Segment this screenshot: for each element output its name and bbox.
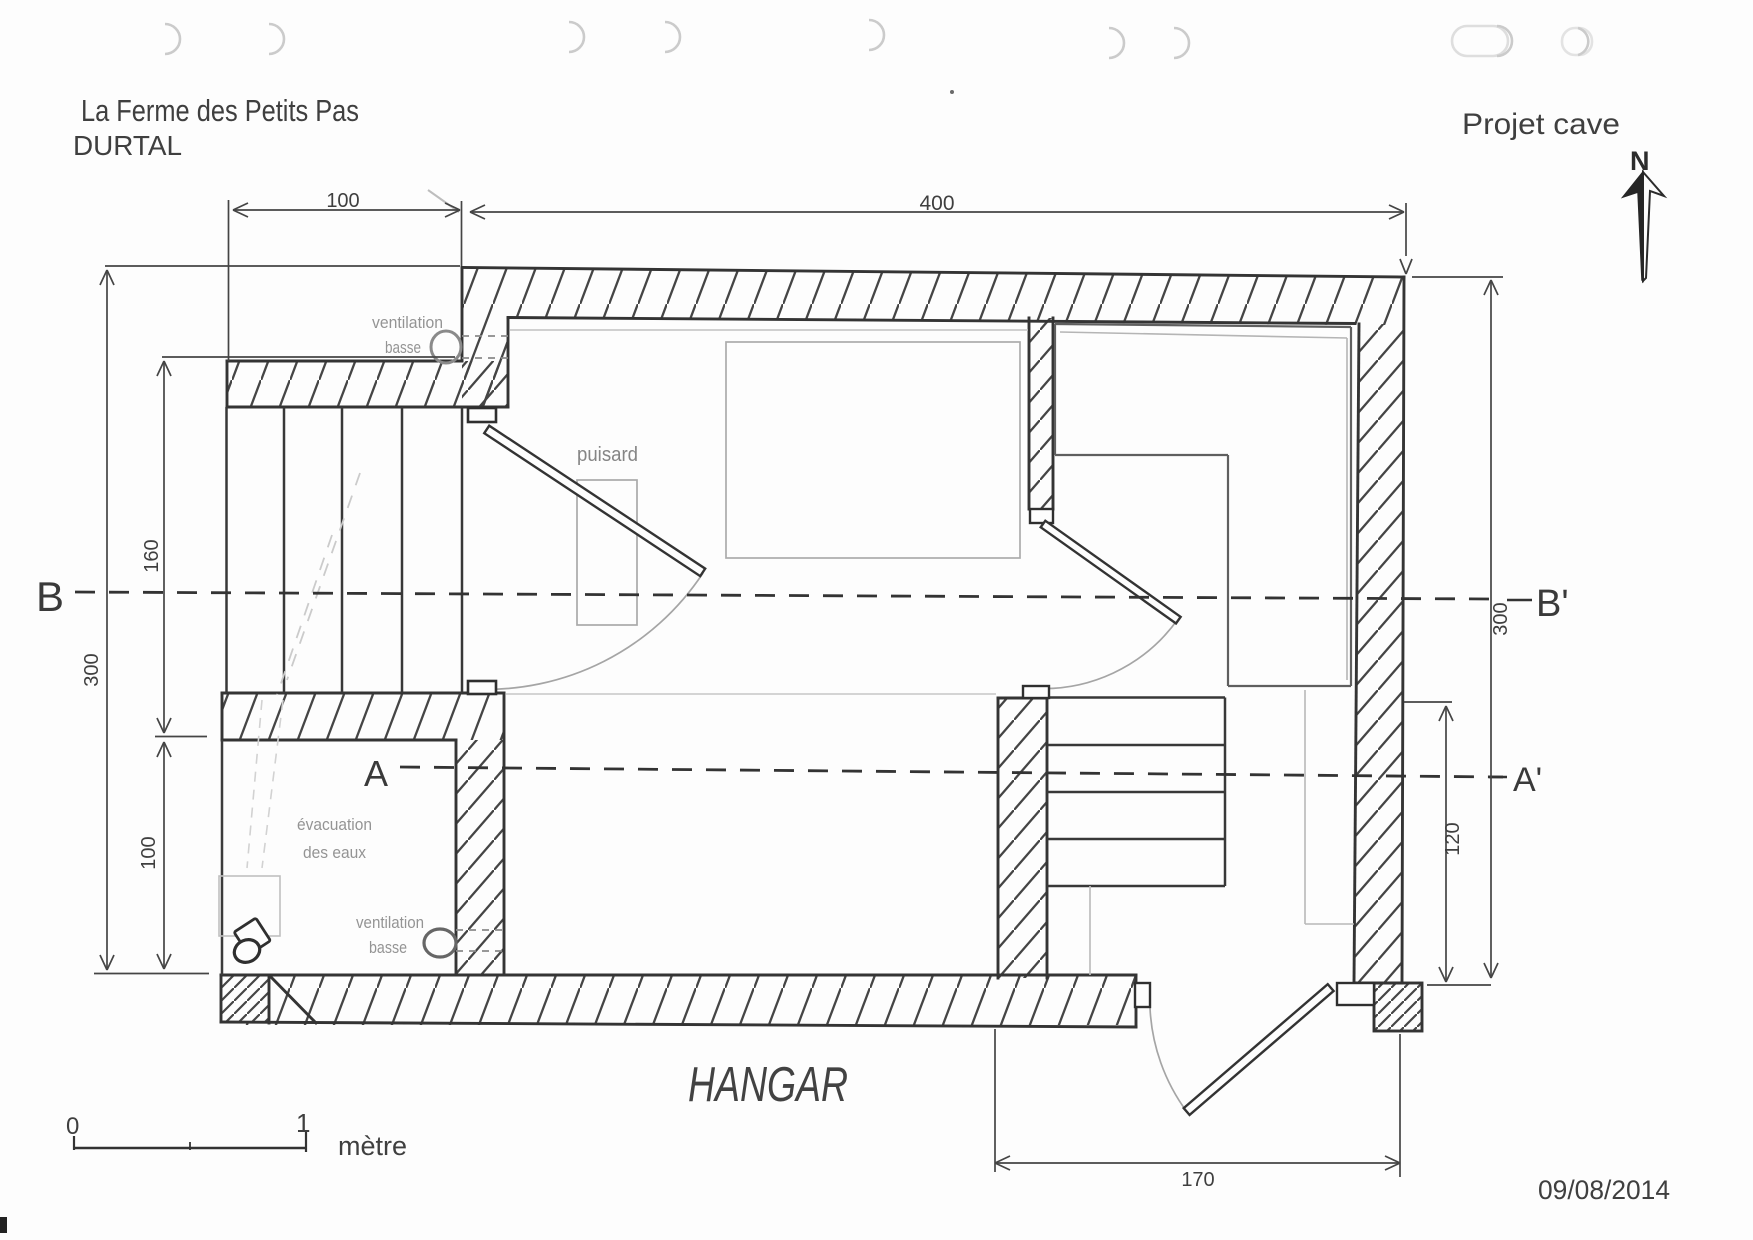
svg-text:100: 100 — [138, 836, 160, 869]
svg-text:basse: basse — [369, 938, 407, 957]
svg-text:La Ferme des Petits Pas: La Ferme des Petits Pas — [81, 93, 359, 128]
svg-text:ventilation: ventilation — [372, 313, 443, 332]
svg-text:N: N — [1630, 146, 1650, 176]
svg-text:160: 160 — [141, 539, 163, 572]
svg-text:300: 300 — [81, 653, 103, 686]
svg-text:09/08/2014: 09/08/2014 — [1538, 1175, 1670, 1205]
svg-text:des eaux: des eaux — [303, 843, 366, 862]
svg-text:A: A — [364, 753, 388, 794]
svg-text:1: 1 — [296, 1108, 310, 1138]
svg-text:mètre: mètre — [338, 1131, 407, 1161]
svg-text:120: 120 — [1442, 822, 1464, 855]
svg-text:ventilation: ventilation — [356, 913, 424, 932]
svg-text:0: 0 — [66, 1113, 79, 1140]
svg-text:170: 170 — [1181, 1169, 1214, 1191]
svg-text:B': B' — [1536, 583, 1569, 625]
svg-text:A': A' — [1513, 761, 1542, 799]
svg-text:puisard: puisard — [577, 444, 638, 466]
svg-text:Projet cave: Projet cave — [1462, 108, 1620, 141]
svg-text:basse: basse — [385, 338, 421, 357]
svg-text:B: B — [36, 573, 64, 620]
svg-text:HANGAR: HANGAR — [688, 1058, 848, 1112]
svg-text:300: 300 — [1490, 602, 1512, 635]
svg-text:DURTAL: DURTAL — [73, 130, 182, 161]
svg-text:400: 400 — [919, 192, 954, 215]
svg-text:100: 100 — [326, 190, 359, 212]
svg-text:évacuation: évacuation — [297, 815, 372, 834]
